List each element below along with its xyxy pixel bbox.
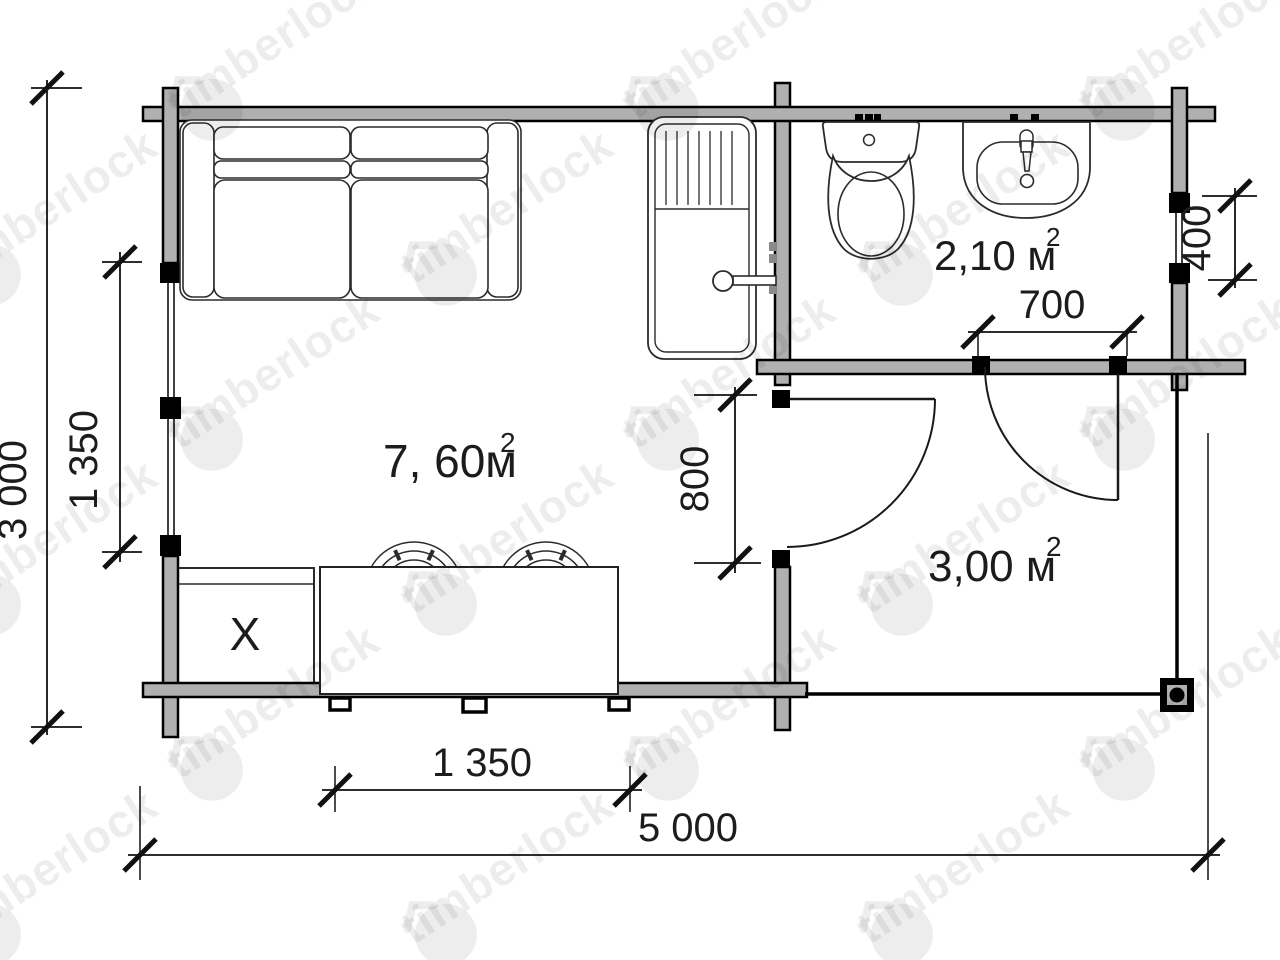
dim-kitchen-front: 1 350 [432, 741, 532, 785]
terrace-door [787, 399, 935, 547]
terrace-area-sup: 2 [1046, 531, 1062, 562]
foundation-tabs [330, 698, 629, 712]
bathroom-area-sup: 2 [1046, 222, 1060, 252]
living-area-sup: 2 [500, 427, 516, 458]
bathroom-area-label: 2,10 м [934, 232, 1056, 279]
dim-left-window: 1 350 [62, 410, 106, 510]
bathroom-door [985, 367, 1118, 500]
interior-wall-lower [775, 567, 790, 730]
left-wall-upper [163, 88, 178, 263]
sofa-icon [180, 120, 521, 300]
left-wall-lower [163, 556, 178, 737]
floor-plan: X [0, 0, 1280, 960]
dim-right-window: 400 [1175, 205, 1219, 272]
dim-overall-height: 3 000 [0, 440, 35, 540]
shower-cabin-icon [648, 117, 776, 359]
interior-wall-upper [775, 83, 790, 385]
terrace-outline [805, 374, 1177, 694]
left-window [160, 263, 181, 556]
toilet-icon [823, 114, 919, 259]
right-wall-upper [1172, 88, 1187, 193]
bathroom-wall [757, 360, 1245, 374]
stove-label: X [230, 608, 261, 660]
living-area-label: 7, 60м [383, 435, 517, 487]
dim-bathroom-door: 700 [1019, 283, 1086, 327]
floor-plan-drawing: X [0, 0, 1280, 960]
kitchen-counter [320, 567, 618, 694]
washbasin-icon [963, 114, 1090, 218]
dim-terrace-door: 800 [673, 446, 717, 513]
door-jambs [772, 356, 1127, 568]
terrace-area-label: 3,00 м [928, 542, 1056, 591]
dim-overall-width: 5 000 [638, 806, 738, 850]
terrace-post-icon [1160, 678, 1194, 712]
